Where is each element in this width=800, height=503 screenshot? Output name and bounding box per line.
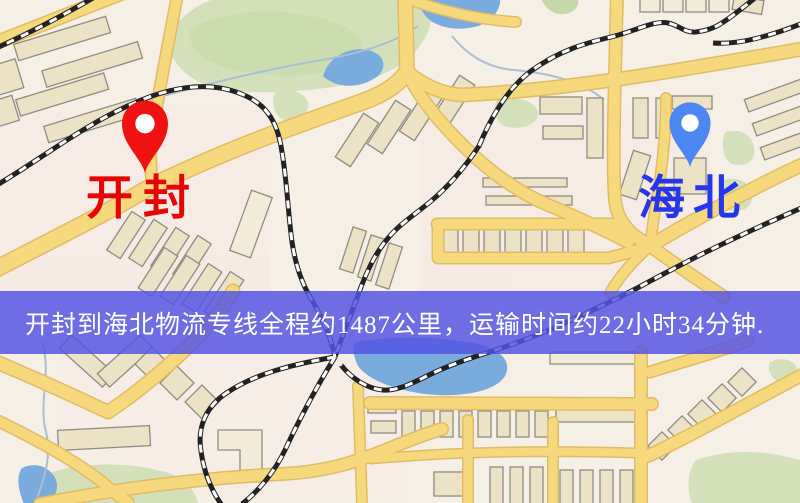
pin-shape [122, 101, 168, 173]
map-canvas[interactable]: 开封 海北 开封到海北物流专线全程约1487公里，运输时间约22小时34分钟. [0, 0, 800, 503]
pin-hole [135, 114, 154, 133]
origin-pin[interactable] [118, 98, 172, 174]
route-info-text: 开封到海北物流专线全程约1487公里，运输时间约22小时34分钟. [25, 305, 764, 341]
route-info-banner: 开封到海北物流专线全程约1487公里，运输时间约22小时34分钟. [0, 291, 800, 354]
pin-shape [669, 102, 710, 167]
pin-hole [681, 114, 698, 131]
destination-pin-icon [665, 100, 715, 168]
map-art [0, 0, 800, 503]
origin-label: 开封 [86, 176, 200, 223]
origin-pin-icon [118, 98, 172, 174]
destination-label: 海北 [638, 176, 748, 223]
destination-pin[interactable] [665, 100, 715, 168]
